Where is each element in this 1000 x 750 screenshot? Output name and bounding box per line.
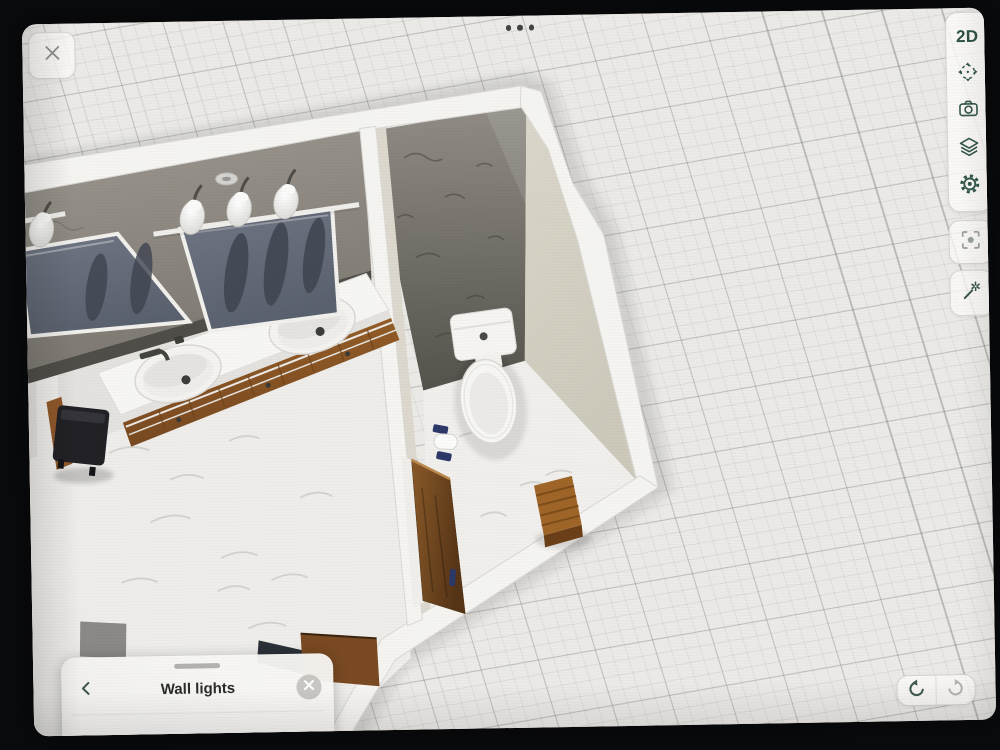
undo-button[interactable] [897,676,936,706]
orbit-view-button[interactable] [954,61,982,87]
chevron-left-icon [77,679,95,702]
panel-divider [72,710,324,715]
camera-frame-icon [959,227,984,256]
panel-close-button[interactable] [296,674,321,699]
undo-arrow-icon [905,677,927,704]
effects-button[interactable] [949,270,994,317]
history-bar [896,674,976,706]
toggle-2d-button[interactable]: 2D [953,24,981,50]
more-dots-icon [506,25,512,31]
panel-back-button[interactable] [73,677,99,703]
circle-x-icon [303,677,314,695]
view-toolbar: 2D [945,12,992,213]
snapshot-button[interactable] [948,220,993,265]
door-handle[interactable] [449,569,456,586]
close-project-button[interactable] [28,32,76,80]
settings-button[interactable] [956,173,984,199]
redo-arrow-icon [944,676,966,703]
camera-icon [956,97,981,126]
gear-icon [958,172,983,201]
more-menu-button[interactable] [494,18,546,37]
orbit-360-icon [956,60,981,89]
selection-panel: Wall lights [61,653,335,736]
magic-wand-icon [959,278,984,307]
tablet-screen: 2D [22,8,996,737]
panel-title: Wall lights [99,678,296,698]
scene-3d-view[interactable] [22,8,996,737]
redo-button[interactable] [935,675,975,705]
layers-button[interactable] [955,136,983,162]
camera-views-button[interactable] [954,99,982,125]
close-icon [42,43,62,68]
ceiling-light[interactable] [215,173,237,185]
layers-icon [957,135,982,164]
